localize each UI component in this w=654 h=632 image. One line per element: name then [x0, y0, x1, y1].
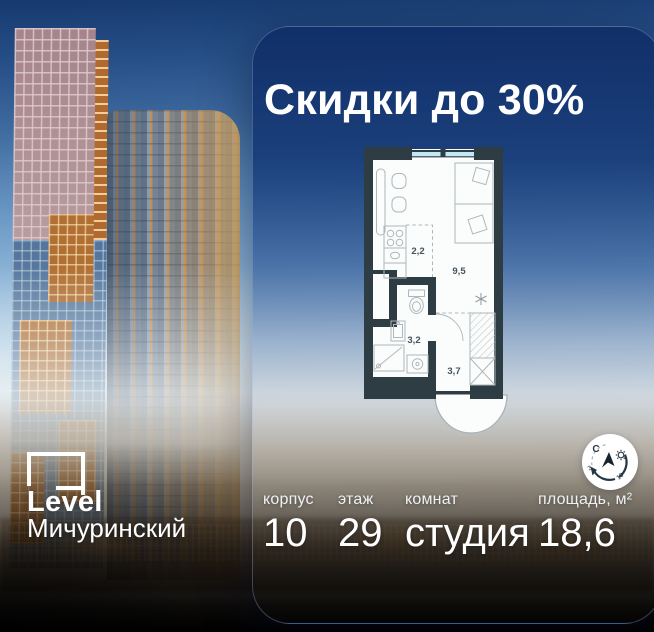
spec-building-value: 10: [263, 512, 314, 554]
discount-title: Скидки до 30%: [264, 75, 584, 127]
spec-rooms-value: студия: [405, 512, 530, 554]
spec-building: корпус 10: [263, 491, 314, 554]
balcony: [435, 395, 507, 433]
brand-project-name: Мичуринский: [27, 515, 186, 541]
area-bathroom: 3,2: [407, 335, 420, 346]
spec-building-label: корпус: [263, 491, 314, 509]
ad-banner[interactable]: Level Мичуринский Скидки до 30%: [0, 0, 654, 632]
closet-hatched: [470, 313, 495, 358]
offer-card[interactable]: Скидки до 30%: [252, 26, 654, 624]
apartment-specs: корпус 10 этаж 29 комнат студия площадь,…: [253, 491, 654, 581]
spec-rooms-label: комнат: [405, 491, 530, 509]
spec-floor: этаж 29: [338, 491, 383, 554]
area-kitchen: 2,2: [411, 246, 424, 257]
area-hallway: 3,7: [447, 366, 460, 377]
spec-floor-value: 29: [338, 512, 383, 554]
spec-floor-label: этаж: [338, 491, 383, 509]
floorplan: 2,2 9,5 3,2 3,7: [364, 147, 510, 439]
spec-rooms: комнат студия: [405, 491, 530, 554]
north-label: С: [592, 444, 599, 455]
spec-area-value: 18,6: [538, 512, 632, 554]
area-living: 9,5: [452, 266, 466, 277]
compass-widget[interactable]: С 3 10: [581, 433, 639, 491]
window: [412, 149, 474, 158]
spec-area: площадь, м² 18,6: [538, 491, 632, 554]
spec-area-label: площадь, м²: [538, 491, 632, 509]
level-logo-frame-icon: [27, 452, 85, 486]
